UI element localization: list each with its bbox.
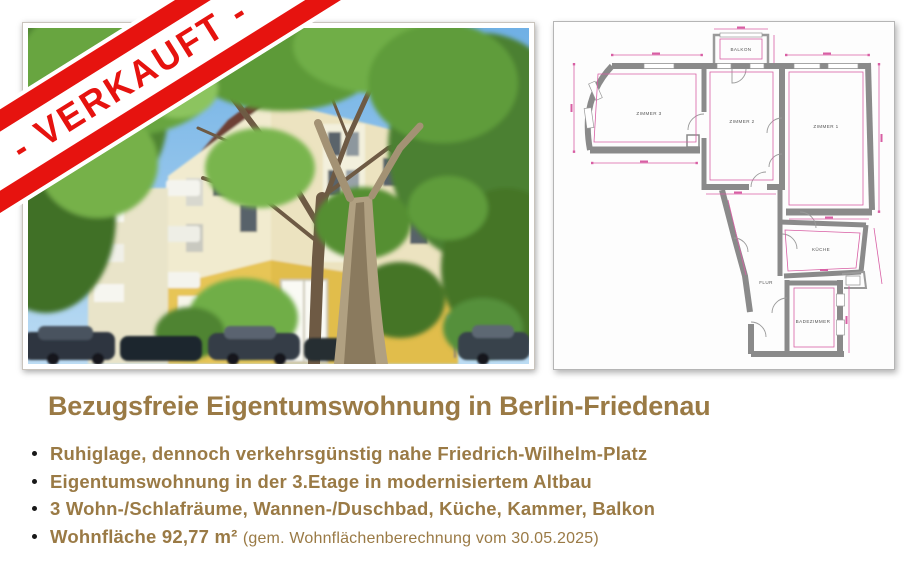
bullet-dot bbox=[32, 534, 37, 539]
bullet-text: Ruhiglage, dennoch verkehrsgünstig nahe … bbox=[50, 443, 647, 464]
page-title: Bezugsfreie Eigentumswohnung in Berlin-F… bbox=[48, 391, 888, 422]
list-item: 3 Wohn-/Schlafräume, Wannen-/Duschbad, K… bbox=[28, 499, 898, 518]
bullet-text: Eigentumswohnung in der 3.Etage in moder… bbox=[50, 471, 592, 492]
room-label-zimmer-3: ZIMMER 3 bbox=[636, 111, 661, 116]
bullet-text: 3 Wohn-/Schlafräume, Wannen-/Duschbad, K… bbox=[50, 498, 655, 519]
list-item: Ruhiglage, dennoch verkehrsgünstig nahe … bbox=[28, 444, 898, 463]
slide: - VERKAUFT - bbox=[0, 0, 920, 569]
bullet-note: (gem. Wohnflächenberechnung vom 30.05.20… bbox=[243, 530, 599, 547]
list-item: Eigentumswohnung in der 3.Etage in moder… bbox=[28, 472, 898, 491]
floorplan-walls bbox=[588, 35, 872, 354]
room-label-kueche: KÜCHE bbox=[812, 246, 830, 252]
floorplan: BALKON ZIMMER 3 ZIMMER 2 ZIMMER 1 KÜCHE … bbox=[554, 22, 894, 369]
room-label-flur: FLUR bbox=[759, 280, 773, 285]
bullet-dot bbox=[32, 506, 37, 511]
room-label-zimmer-1: ZIMMER 1 bbox=[813, 124, 838, 129]
bullet-dot bbox=[32, 451, 37, 456]
floorplan-frame: BALKON ZIMMER 3 ZIMMER 2 ZIMMER 1 KÜCHE … bbox=[553, 21, 895, 370]
bullet-list: Ruhiglage, dennoch verkehrsgünstig nahe … bbox=[28, 444, 898, 556]
room-label-balkon: BALKON bbox=[730, 47, 751, 52]
floorplan-doors bbox=[688, 69, 816, 337]
list-item: Wohnfläche 92,77 m² (gem. Wohnflächenber… bbox=[28, 527, 898, 548]
room-label-badezimmer: BADEZIMMER bbox=[796, 319, 831, 324]
room-label-zimmer-2: ZIMMER 2 bbox=[729, 119, 754, 124]
bullet-dot bbox=[32, 479, 37, 484]
bullet-text: Wohnfläche 92,77 m² bbox=[50, 526, 237, 547]
